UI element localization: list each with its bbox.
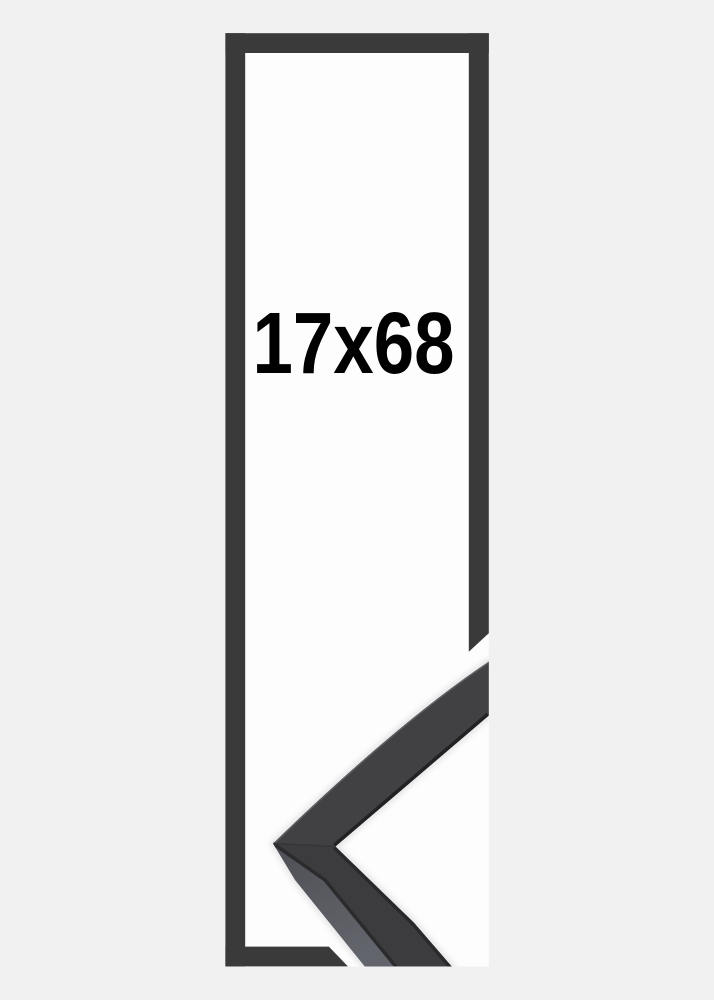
svg-text:17x68: 17x68 xyxy=(253,295,455,392)
